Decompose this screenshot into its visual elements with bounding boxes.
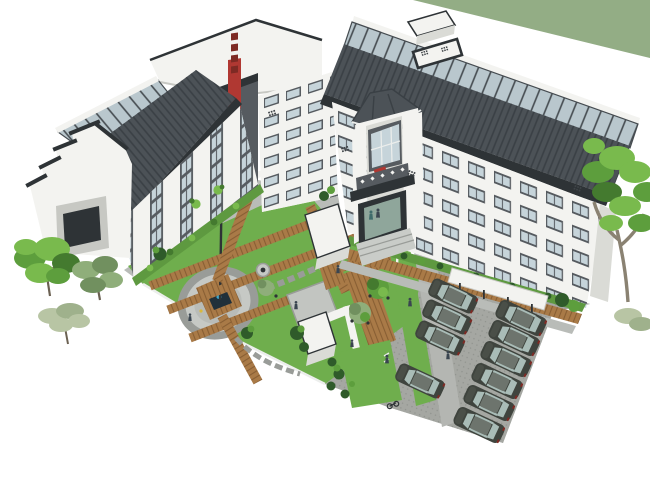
gold-ornament xyxy=(199,309,202,312)
person-road-2 xyxy=(408,298,412,307)
person-courtyard-1 xyxy=(336,265,340,273)
rendering-stage xyxy=(0,0,650,482)
person-deck xyxy=(350,339,353,347)
person-entrance-1 xyxy=(369,211,373,220)
person-entrance-2 xyxy=(376,209,380,218)
person-plaza xyxy=(188,313,191,321)
person-parking xyxy=(446,351,450,359)
rendering-canvas xyxy=(0,0,650,482)
person-courtyard-2 xyxy=(294,301,298,309)
person-road-1 xyxy=(385,355,389,364)
manhole-center xyxy=(261,268,266,273)
